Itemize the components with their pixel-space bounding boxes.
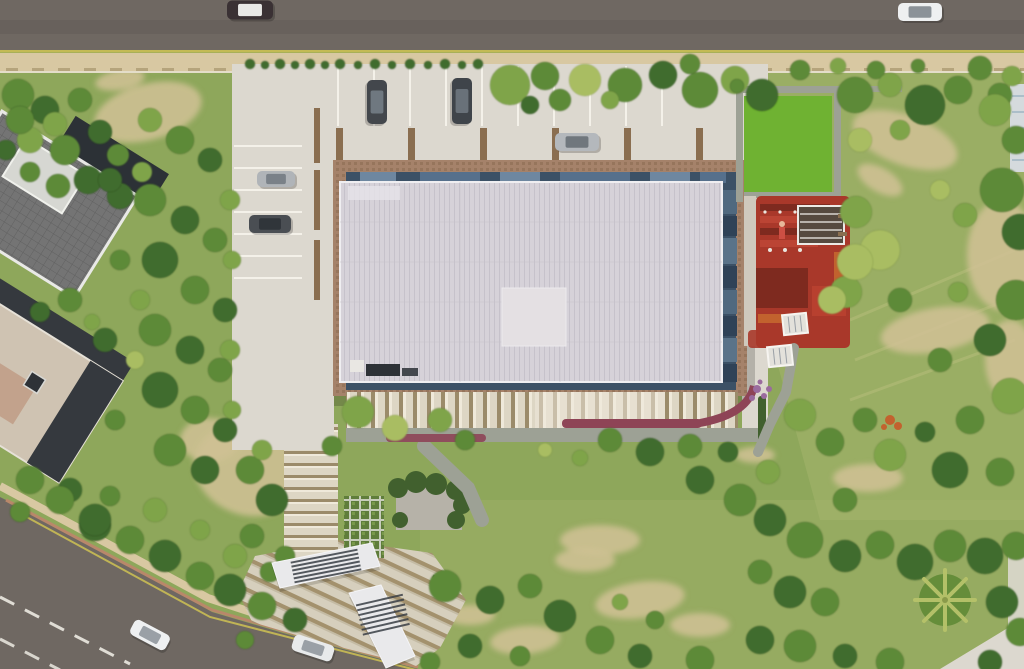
tree xyxy=(139,314,171,346)
tree xyxy=(455,430,475,450)
car-roof-glass xyxy=(371,91,384,114)
south-pergola xyxy=(346,386,768,442)
aerial-site-rendering xyxy=(0,0,1024,669)
roof-light-patch xyxy=(502,288,566,346)
tree xyxy=(878,73,902,97)
tree xyxy=(784,399,816,431)
tree xyxy=(1002,66,1022,86)
lawn-path-east xyxy=(834,92,841,204)
tree xyxy=(181,276,209,304)
tree xyxy=(888,288,912,312)
roof-vent xyxy=(366,364,400,376)
road-wear xyxy=(0,20,1024,34)
tree xyxy=(853,408,877,432)
tree xyxy=(110,250,130,270)
tree xyxy=(10,502,30,522)
tree xyxy=(897,544,933,580)
tree xyxy=(586,626,614,654)
parking-car-dark-1 xyxy=(365,80,387,126)
tree xyxy=(980,168,1024,212)
tree xyxy=(956,406,984,434)
tree xyxy=(342,396,374,428)
tree xyxy=(948,282,968,302)
tree xyxy=(335,59,345,69)
tree xyxy=(818,286,846,314)
tree xyxy=(223,251,241,269)
tree xyxy=(429,570,461,602)
tree xyxy=(890,120,910,140)
tree xyxy=(934,530,966,562)
tree xyxy=(569,64,601,96)
tree xyxy=(833,488,857,512)
palm-tree xyxy=(915,570,975,630)
tree xyxy=(428,408,452,432)
roof-hatch xyxy=(350,360,364,372)
tree xyxy=(549,89,571,111)
tree xyxy=(754,504,786,536)
main-building xyxy=(333,160,755,406)
tree xyxy=(680,54,700,74)
tree xyxy=(186,562,214,590)
tree xyxy=(43,112,67,136)
tree xyxy=(354,61,362,69)
translucent-roof xyxy=(340,182,722,382)
car-roof-glass xyxy=(259,218,281,230)
tree xyxy=(198,148,222,172)
tree xyxy=(236,456,264,484)
tree xyxy=(93,328,117,352)
tree xyxy=(252,440,272,460)
tree xyxy=(245,59,255,69)
tree xyxy=(911,59,925,73)
tree xyxy=(968,56,992,80)
tree xyxy=(181,396,209,424)
tree xyxy=(58,288,82,312)
tree xyxy=(190,520,210,540)
tree xyxy=(986,586,1018,618)
tree xyxy=(171,206,199,234)
tree xyxy=(928,348,952,372)
tree xyxy=(686,646,714,669)
play-dot xyxy=(768,248,772,252)
tree xyxy=(636,438,664,466)
tree xyxy=(322,436,342,456)
person xyxy=(779,221,785,227)
tree xyxy=(848,128,872,152)
tree xyxy=(143,498,167,522)
tree xyxy=(682,72,718,108)
person-body xyxy=(779,227,785,239)
parking-car-silver-1 xyxy=(555,133,601,153)
tree xyxy=(132,162,152,182)
tree xyxy=(598,428,622,452)
tree xyxy=(176,336,204,364)
tree xyxy=(275,59,285,69)
tree xyxy=(840,196,872,228)
tree xyxy=(746,626,774,654)
tree xyxy=(126,351,144,369)
play-dot xyxy=(778,210,781,213)
tree xyxy=(686,466,714,494)
tree xyxy=(830,58,846,74)
tree xyxy=(774,576,806,608)
playground-edge-path xyxy=(744,196,756,346)
play-dot xyxy=(793,210,796,213)
tree xyxy=(787,522,823,558)
tree xyxy=(116,526,144,554)
road-edge-line xyxy=(0,50,1024,53)
tree xyxy=(718,442,738,462)
tree xyxy=(915,422,935,442)
tree xyxy=(953,203,977,227)
tree xyxy=(905,85,945,125)
tree xyxy=(790,60,810,80)
tree xyxy=(601,91,619,109)
play-dot xyxy=(798,248,802,252)
planter-dividers-west xyxy=(314,108,320,300)
play-dot xyxy=(763,210,766,213)
tree xyxy=(746,79,778,111)
tree xyxy=(6,106,34,134)
tree xyxy=(424,61,432,69)
east-glass-panels xyxy=(723,190,737,382)
tree xyxy=(46,174,70,198)
tree xyxy=(213,418,237,442)
tree xyxy=(100,486,120,506)
tree xyxy=(874,439,906,471)
tree xyxy=(986,458,1014,486)
parking-car-silver-2 xyxy=(257,171,297,189)
tree xyxy=(544,600,576,632)
tree xyxy=(730,79,744,93)
tree xyxy=(382,415,408,441)
tree xyxy=(321,61,329,69)
tree xyxy=(305,59,315,69)
tree xyxy=(974,324,1006,356)
play-dot xyxy=(783,248,787,252)
parking-car-dark-3 xyxy=(249,215,293,235)
tree xyxy=(88,120,112,144)
pavilion-1 xyxy=(782,313,808,335)
tree xyxy=(20,162,40,182)
tree xyxy=(628,644,652,668)
tree xyxy=(105,410,125,430)
tree xyxy=(142,372,178,408)
lawn xyxy=(744,96,832,194)
tree xyxy=(149,540,181,572)
tree xyxy=(283,608,307,632)
tree xyxy=(510,646,530,666)
tree xyxy=(992,378,1024,414)
tree xyxy=(538,443,552,457)
tree xyxy=(98,168,122,192)
tree xyxy=(932,452,968,488)
lawn-path-west xyxy=(736,92,743,202)
car-roof-glass xyxy=(566,136,589,148)
tree xyxy=(649,61,677,89)
tree xyxy=(0,140,16,160)
tree xyxy=(811,588,839,616)
tree xyxy=(142,242,178,278)
tree xyxy=(68,88,92,112)
tree xyxy=(79,504,111,536)
parking-car-dark-2 xyxy=(450,78,472,126)
tree xyxy=(944,76,972,104)
tree xyxy=(866,531,894,559)
tree xyxy=(572,450,588,466)
pavilion-2 xyxy=(767,345,793,367)
car-roof-glass xyxy=(909,6,932,18)
dirt-patch xyxy=(555,548,615,572)
tree xyxy=(138,108,162,132)
tree xyxy=(130,290,150,310)
tree xyxy=(612,594,628,610)
tree xyxy=(223,401,241,419)
palm-center xyxy=(942,597,948,603)
tree xyxy=(420,652,440,669)
tree xyxy=(724,484,756,516)
tree xyxy=(518,574,542,598)
bench xyxy=(838,232,847,236)
top-road-car-dark xyxy=(227,1,275,22)
tree xyxy=(203,228,227,252)
tree xyxy=(405,59,415,69)
flower-hedge xyxy=(562,419,702,428)
tree xyxy=(967,538,1003,574)
tree xyxy=(833,644,857,668)
tree xyxy=(473,59,483,69)
tree xyxy=(30,302,50,322)
tree xyxy=(261,61,269,69)
roof-corner-panel xyxy=(348,186,400,200)
tree xyxy=(107,144,129,166)
dirt-patch xyxy=(670,613,730,637)
tree xyxy=(370,59,380,69)
tree xyxy=(240,524,264,548)
tree xyxy=(236,631,254,649)
tree xyxy=(208,358,232,382)
north-road xyxy=(0,0,1024,73)
tree xyxy=(748,560,772,584)
roof-vent-small xyxy=(402,368,418,376)
tree xyxy=(256,484,288,516)
tree xyxy=(756,460,780,484)
car-roof-glass xyxy=(238,4,262,16)
car-roof-glass xyxy=(266,174,286,184)
tree xyxy=(458,61,466,69)
tree xyxy=(440,59,450,69)
car-roof-glass xyxy=(456,89,469,113)
tree xyxy=(84,314,100,330)
tree xyxy=(829,540,861,572)
tree xyxy=(388,61,396,69)
tree xyxy=(214,574,246,606)
tree xyxy=(784,630,816,662)
tree xyxy=(816,428,844,456)
tree xyxy=(223,544,247,568)
tree xyxy=(476,586,504,614)
tree xyxy=(678,434,702,458)
tree xyxy=(930,180,950,200)
tree xyxy=(134,184,166,216)
tree xyxy=(979,94,1011,126)
tree xyxy=(521,96,539,114)
tree xyxy=(220,340,240,360)
top-road-car-white xyxy=(898,3,944,23)
tree xyxy=(837,77,873,113)
tree xyxy=(50,135,80,165)
tree xyxy=(213,298,237,322)
tree xyxy=(837,244,873,280)
tree xyxy=(166,126,194,154)
tree xyxy=(248,592,276,620)
tree xyxy=(46,486,74,514)
tree xyxy=(191,456,219,484)
tree xyxy=(16,466,44,494)
tree xyxy=(646,611,664,629)
play-block-maroon xyxy=(756,268,808,308)
tree xyxy=(531,62,559,90)
tree xyxy=(154,434,186,466)
tree xyxy=(458,634,482,658)
tree xyxy=(291,61,299,69)
tree xyxy=(220,190,240,210)
